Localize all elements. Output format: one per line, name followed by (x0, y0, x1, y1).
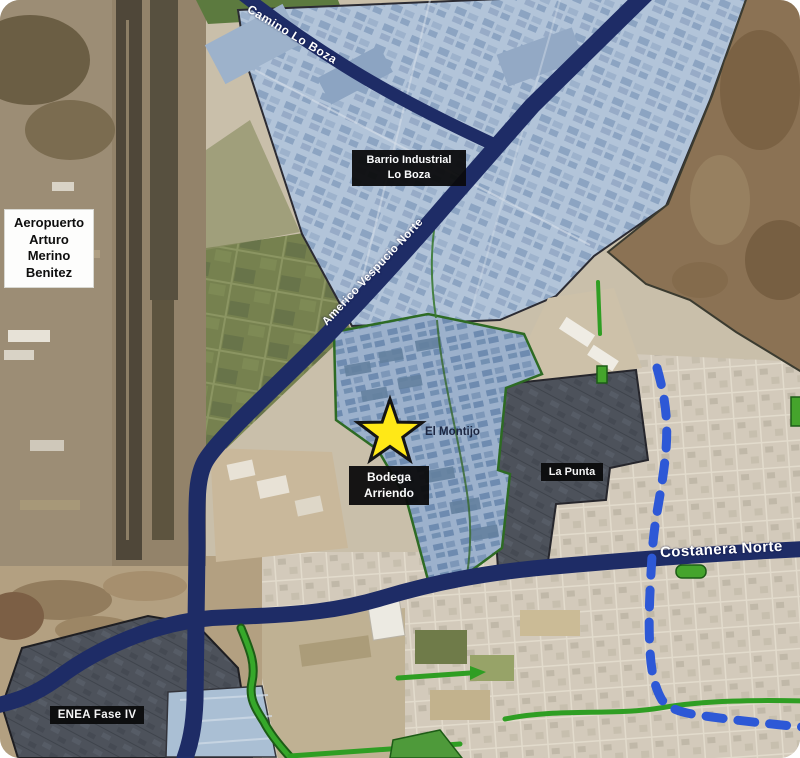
map-canvas: Camino Lo Boza Barrio Industrial Lo Boza… (0, 0, 800, 758)
satellite-map (0, 0, 800, 758)
area-label-el-montijo: El Montijo (425, 426, 480, 438)
airport-label: Aeropuerto Arturo Merino Benitez (4, 209, 94, 288)
zone-label-enea-fase-iv: ENEA Fase IV (50, 706, 144, 724)
route-badge (676, 565, 706, 578)
zone-label-barrio-industrial: Barrio Industrial Lo Boza (352, 150, 466, 186)
map-image[interactable]: Camino Lo Boza Barrio Industrial Lo Boza… (0, 0, 800, 758)
zone-label-la-punta: La Punta (541, 463, 603, 481)
marker-label-bodega-arriendo: Bodega Arriendo (349, 466, 429, 505)
